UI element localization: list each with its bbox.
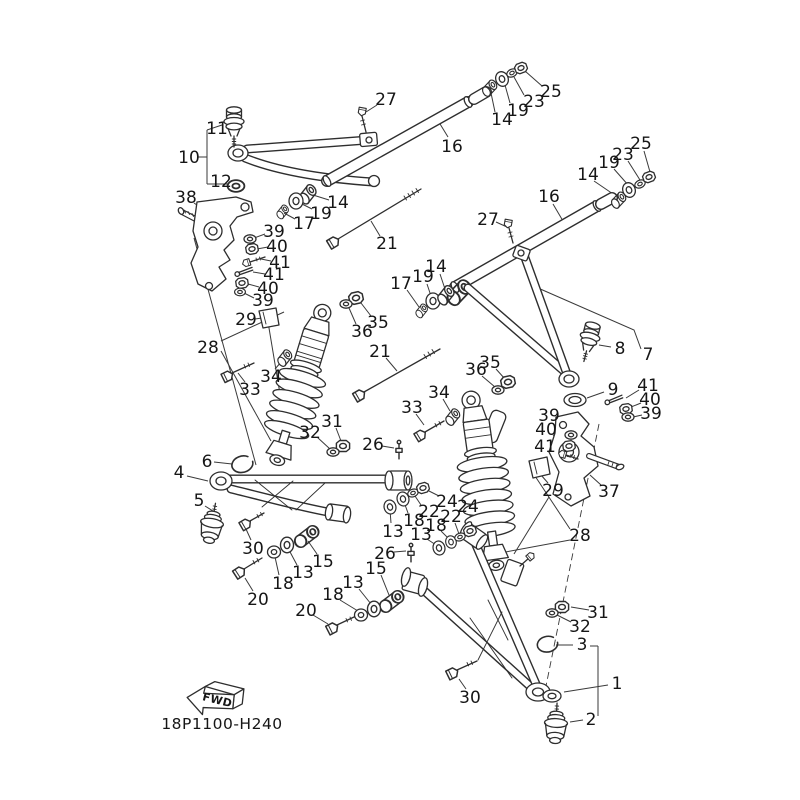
callout-36: 36 bbox=[465, 360, 487, 380]
nut-40-left-a bbox=[245, 243, 259, 255]
callout-20: 20 bbox=[295, 601, 317, 621]
callout-2: 2 bbox=[586, 710, 597, 730]
callout-14: 14 bbox=[577, 165, 599, 185]
bushing-19-mid-left bbox=[289, 193, 303, 209]
callout-12: 12 bbox=[210, 172, 232, 192]
callout-leader-4 bbox=[187, 476, 208, 481]
callout-6: 6 bbox=[202, 452, 213, 472]
callout-13: 13 bbox=[382, 522, 404, 542]
callout-leader-18 bbox=[275, 557, 279, 575]
lower-arm-right bbox=[400, 520, 550, 701]
grease-fitting-26-left bbox=[396, 440, 402, 459]
callout-11: 11 bbox=[206, 119, 228, 139]
nut-40-left-b bbox=[235, 277, 248, 289]
bolt-27-upper bbox=[358, 107, 366, 132]
callout-31: 31 bbox=[321, 412, 343, 432]
callout-26: 26 bbox=[362, 435, 384, 455]
callout-leader-9 bbox=[587, 392, 604, 398]
callout-36: 36 bbox=[351, 322, 373, 342]
collar-15-left bbox=[291, 524, 322, 549]
callout-32: 32 bbox=[299, 423, 321, 443]
callout-8: 8 bbox=[615, 339, 626, 359]
callout-19: 19 bbox=[598, 153, 620, 173]
callout-16: 16 bbox=[538, 187, 560, 207]
upper-arm-right bbox=[443, 245, 579, 387]
callout-29: 29 bbox=[235, 310, 257, 330]
bracket-leader-line bbox=[514, 497, 549, 554]
ball-joint-2 bbox=[543, 702, 568, 744]
ball-joint-8 bbox=[574, 320, 603, 364]
circlip-6 bbox=[230, 454, 255, 475]
callout-28: 28 bbox=[197, 338, 219, 358]
callout-21: 21 bbox=[376, 234, 398, 254]
nut-24-left-rear bbox=[416, 482, 430, 495]
callout-13: 13 bbox=[342, 573, 364, 593]
bolt-30-left bbox=[239, 513, 264, 531]
callout-7: 7 bbox=[643, 345, 654, 365]
grease-fitting-26-right bbox=[408, 543, 414, 562]
washer-32-right bbox=[546, 609, 558, 617]
washer-18-right-rear bbox=[355, 609, 368, 621]
callout-3: 3 bbox=[577, 635, 588, 655]
callout-29: 29 bbox=[542, 481, 564, 501]
callout-numbers-layer: 1110123827162523191425231914162714191721… bbox=[174, 82, 662, 730]
bushing-13-right-rear bbox=[367, 601, 380, 617]
callout-leader-5 bbox=[205, 506, 213, 511]
bolt-41-left bbox=[242, 257, 265, 267]
bushing-34-right bbox=[443, 407, 463, 427]
spring-seat-tag-left bbox=[259, 308, 279, 328]
bolt-27-right bbox=[504, 219, 513, 243]
bolt-20-right bbox=[326, 617, 354, 635]
callout-34: 34 bbox=[260, 367, 282, 387]
washer-36-left bbox=[340, 300, 352, 308]
callout-17: 17 bbox=[390, 274, 412, 294]
callout-33: 33 bbox=[239, 380, 261, 400]
callout-leader-8 bbox=[599, 345, 611, 347]
bolt-33-right bbox=[414, 421, 444, 442]
callout-19: 19 bbox=[412, 267, 434, 287]
nut-25-rod-b bbox=[642, 170, 657, 184]
washer-39-knuckle-right bbox=[565, 431, 577, 439]
callout-16: 16 bbox=[441, 137, 463, 157]
collar-17-mid-left bbox=[274, 204, 291, 220]
circlip-3 bbox=[536, 635, 559, 654]
callout-13: 13 bbox=[410, 525, 432, 545]
callout-4: 4 bbox=[174, 463, 185, 483]
callout-20: 20 bbox=[247, 590, 269, 610]
callout-leader-6 bbox=[214, 462, 232, 464]
callout-10: 10 bbox=[178, 148, 200, 168]
callout-30: 30 bbox=[459, 688, 481, 708]
callout-27: 27 bbox=[375, 90, 397, 110]
parts-diagram-page: FWD 18P1100-H240 11101238271625231914252… bbox=[0, 0, 800, 800]
callout-34: 34 bbox=[428, 383, 450, 403]
callout-13: 13 bbox=[292, 563, 314, 583]
callout-37: 37 bbox=[598, 482, 620, 502]
callout-18: 18 bbox=[322, 585, 344, 605]
washer-39-left-a bbox=[244, 235, 256, 243]
callout-9: 9 bbox=[608, 380, 619, 400]
washer-36-right bbox=[492, 386, 504, 394]
seal-ring-9 bbox=[564, 394, 586, 407]
callout-15: 15 bbox=[365, 559, 387, 579]
bushing-13-right-front bbox=[431, 540, 446, 557]
callout-39: 39 bbox=[252, 291, 274, 311]
spring-seat-tag-right bbox=[529, 457, 550, 478]
bolt-20-left bbox=[233, 558, 262, 579]
callout-18: 18 bbox=[272, 574, 294, 594]
callout-leader-2 bbox=[570, 720, 583, 722]
callout-21: 21 bbox=[369, 342, 391, 362]
callout-15: 15 bbox=[312, 552, 334, 572]
callout-28: 28 bbox=[569, 526, 591, 546]
cotter-pin-41-left bbox=[234, 267, 253, 276]
washer-39-left-b bbox=[235, 288, 246, 296]
callout-33: 33 bbox=[401, 398, 423, 418]
callout-1: 1 bbox=[612, 674, 623, 694]
callout-14: 14 bbox=[491, 110, 513, 130]
bushing-13-left-rear bbox=[382, 499, 397, 516]
washer-39-right bbox=[622, 413, 634, 421]
bolt-30-right bbox=[446, 661, 477, 680]
callout-leader-1 bbox=[564, 685, 608, 692]
washer-18-left-front bbox=[268, 546, 281, 558]
callout-41: 41 bbox=[534, 437, 556, 457]
exploded-parts-diagram: FWD 18P1100-H240 11101238271625231914252… bbox=[0, 0, 800, 800]
callout-5: 5 bbox=[194, 491, 205, 511]
callout-17: 17 bbox=[293, 214, 315, 234]
steering-knuckle-left bbox=[177, 197, 253, 291]
callout-39: 39 bbox=[640, 404, 662, 424]
callout-leader-25 bbox=[644, 151, 650, 172]
pivot-bolt-21-lower bbox=[353, 349, 440, 402]
washer-32-left bbox=[327, 448, 339, 456]
callout-32: 32 bbox=[569, 617, 591, 637]
callout-27: 27 bbox=[477, 210, 499, 230]
bushing-cap-1 bbox=[543, 690, 561, 702]
diagram-code: 18P1100-H240 bbox=[161, 715, 282, 733]
nut-25-rod-a bbox=[514, 61, 529, 75]
callout-30: 30 bbox=[242, 539, 264, 559]
bushing-13-left-front bbox=[280, 537, 293, 553]
nut-40-knuckle-right bbox=[562, 440, 575, 452]
callout-38: 38 bbox=[175, 188, 197, 208]
lower-arm-left bbox=[210, 471, 412, 523]
